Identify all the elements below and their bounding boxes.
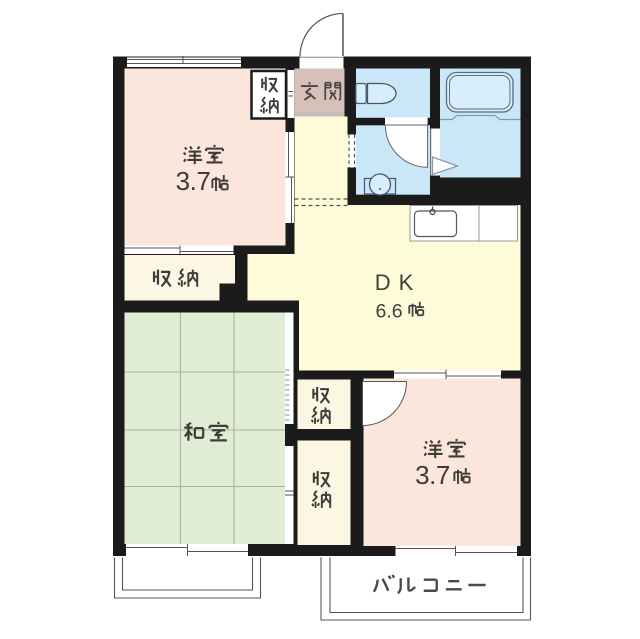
svg-text:6.6: 6.6 [375, 301, 402, 323]
svg-text:DK: DK [375, 270, 422, 295]
svg-text:3.7: 3.7 [176, 166, 211, 196]
svg-text:3.7: 3.7 [415, 460, 450, 490]
